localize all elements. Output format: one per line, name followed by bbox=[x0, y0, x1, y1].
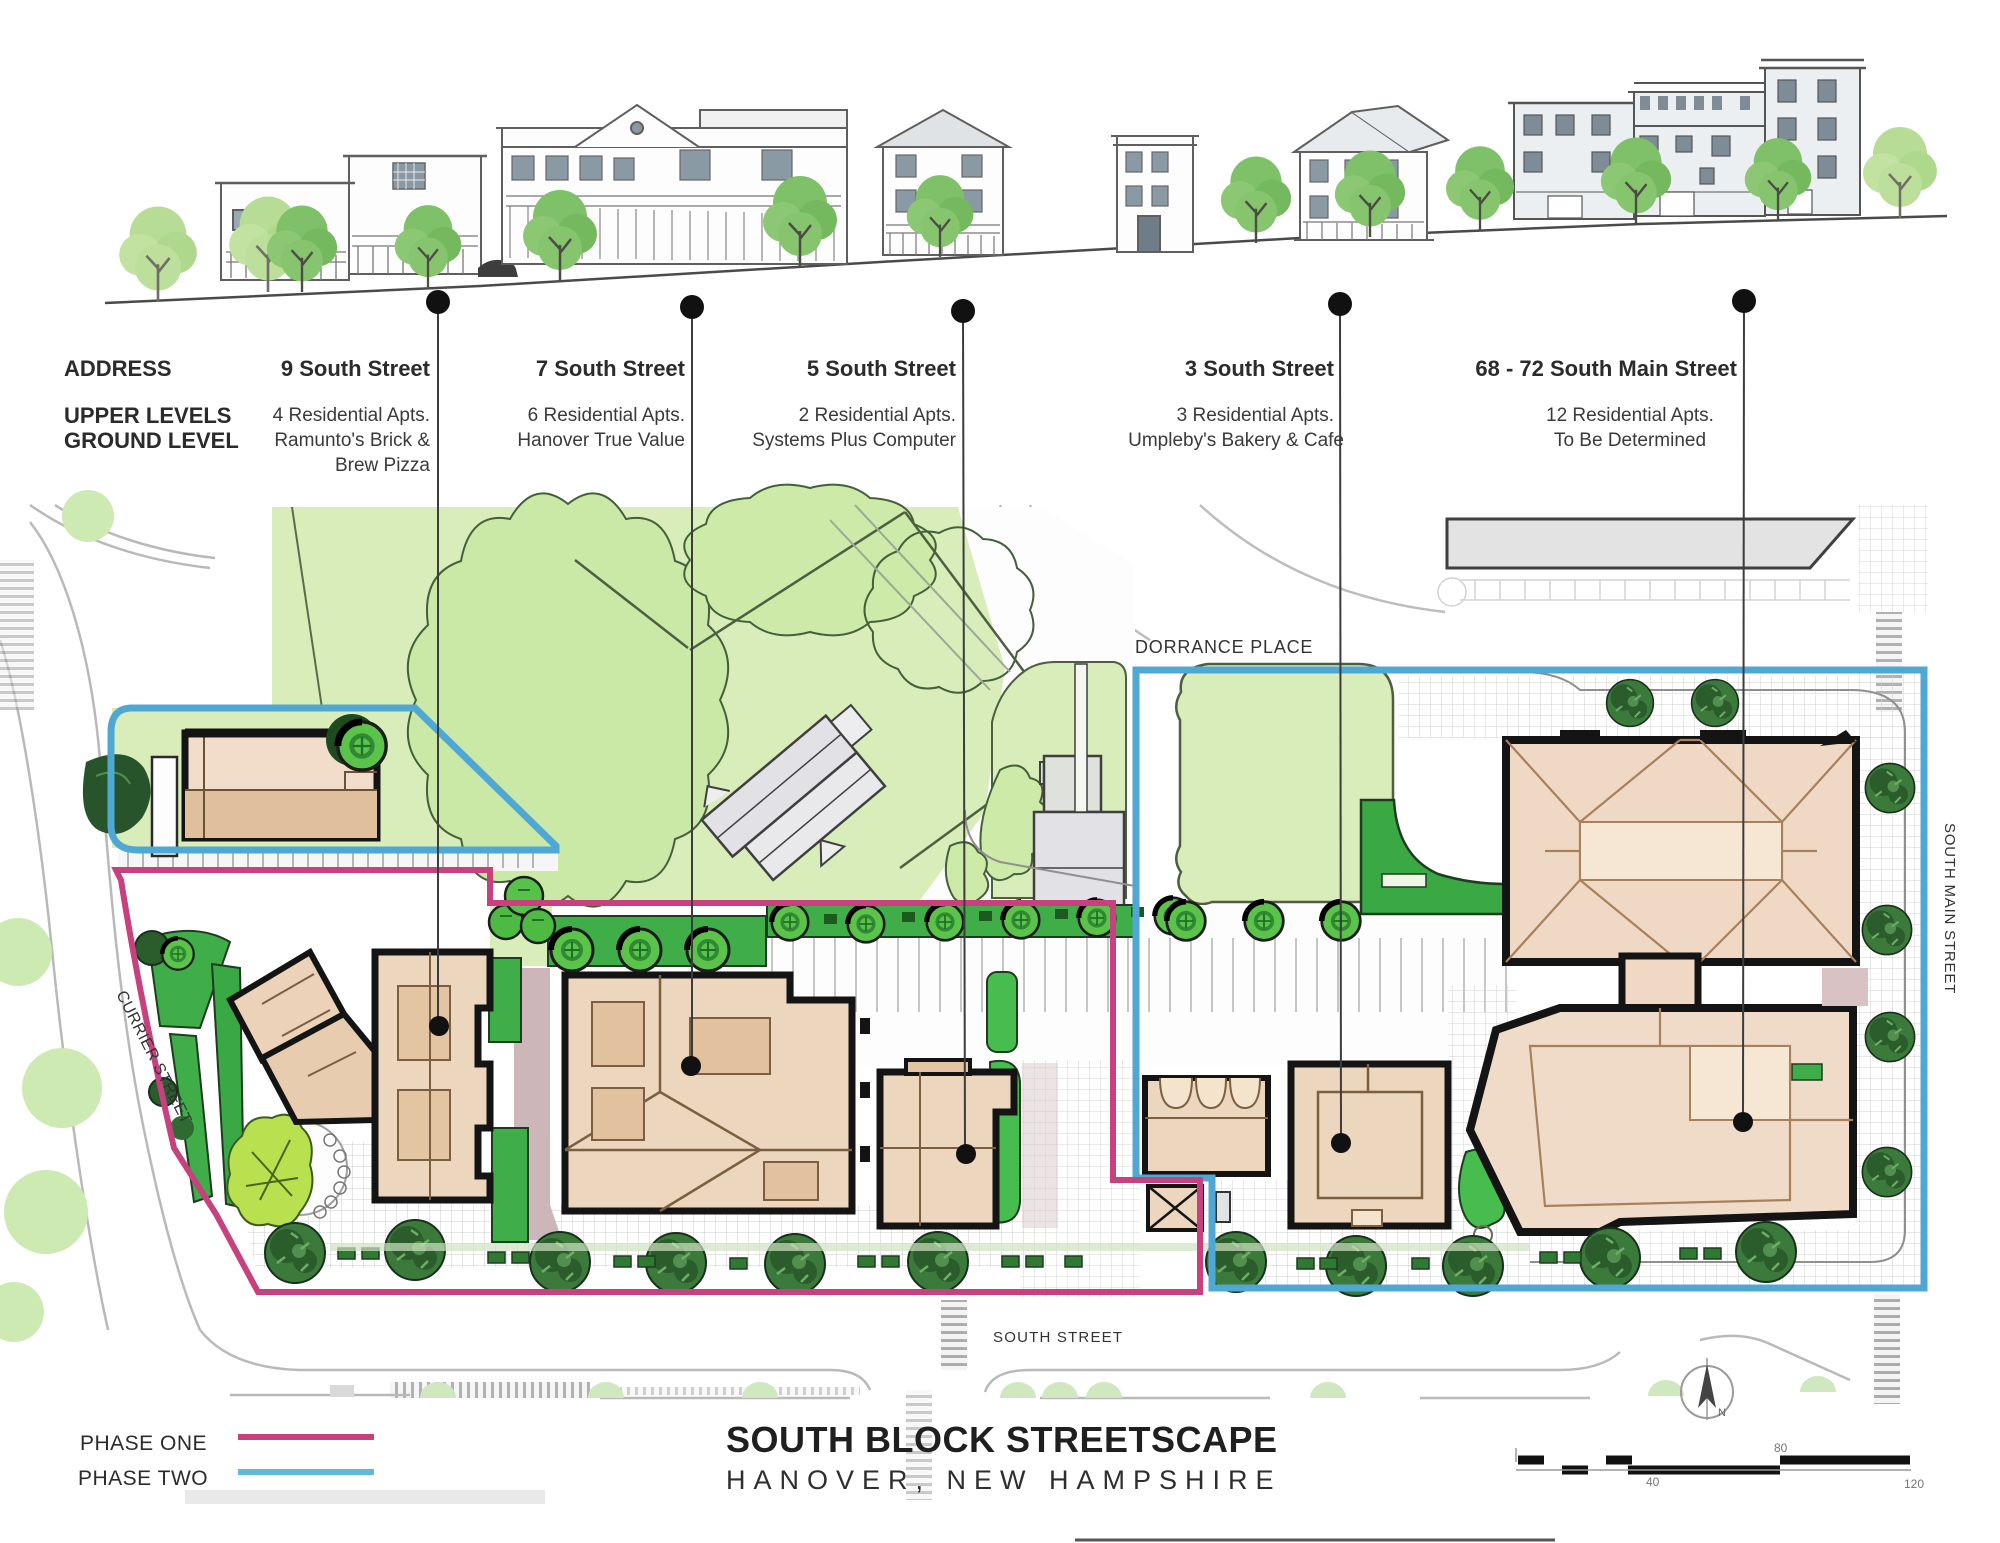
svg-text:DORRANCE PLACE: DORRANCE PLACE bbox=[1135, 637, 1313, 657]
svg-text:3 Residential Apts.: 3 Residential Apts. bbox=[1177, 405, 1334, 426]
svg-text:UPPER LEVELS: UPPER LEVELS bbox=[64, 403, 231, 428]
svg-text:12 Residential Apts.: 12 Residential Apts. bbox=[1546, 405, 1714, 426]
svg-text:Hanover True Value: Hanover True Value bbox=[517, 430, 685, 451]
svg-text:PHASE ONE: PHASE ONE bbox=[80, 1432, 207, 1455]
svg-text:N: N bbox=[1718, 1407, 1726, 1419]
svg-text:SOUTH MAIN STREET: SOUTH MAIN STREET bbox=[1941, 823, 1958, 994]
svg-text:3 South Street: 3 South Street bbox=[1185, 356, 1335, 381]
svg-text:HANOVER, NEW HAMPSHIRE: HANOVER, NEW HAMPSHIRE bbox=[726, 1465, 1282, 1495]
svg-text:4 Residential Apts.: 4 Residential Apts. bbox=[273, 405, 430, 426]
svg-text:40: 40 bbox=[1646, 1475, 1660, 1489]
svg-text:SOUTH BLOCK STREETSCAPE: SOUTH BLOCK STREETSCAPE bbox=[726, 1419, 1278, 1460]
svg-text:6 Residential Apts.: 6 Residential Apts. bbox=[528, 405, 685, 426]
svg-text:68 - 72 South Main Street: 68 - 72 South Main Street bbox=[1475, 356, 1737, 381]
svg-text:ADDRESS: ADDRESS bbox=[64, 356, 172, 381]
svg-text:9 South Street: 9 South Street bbox=[281, 356, 431, 381]
svg-text:80: 80 bbox=[1774, 1441, 1788, 1455]
svg-text:120: 120 bbox=[1904, 1477, 1924, 1491]
svg-text:Systems Plus Computer: Systems Plus Computer bbox=[752, 430, 956, 451]
svg-text:Brew Pizza: Brew Pizza bbox=[335, 455, 430, 476]
svg-text:Ramunto's Brick &: Ramunto's Brick & bbox=[274, 430, 430, 451]
svg-text:Umpleby's Bakery & Cafe: Umpleby's Bakery & Cafe bbox=[1128, 430, 1344, 451]
svg-text:2 Residential Apts.: 2 Residential Apts. bbox=[799, 405, 956, 426]
svg-text:SOUTH STREET: SOUTH STREET bbox=[993, 1329, 1123, 1346]
svg-text:PHASE TWO: PHASE TWO bbox=[78, 1467, 208, 1490]
svg-text:5 South Street: 5 South Street bbox=[807, 356, 957, 381]
svg-text:GROUND LEVEL: GROUND LEVEL bbox=[64, 428, 239, 453]
svg-text:To Be Determined: To Be Determined bbox=[1554, 430, 1706, 451]
svg-text:7 South Street: 7 South Street bbox=[536, 356, 686, 381]
